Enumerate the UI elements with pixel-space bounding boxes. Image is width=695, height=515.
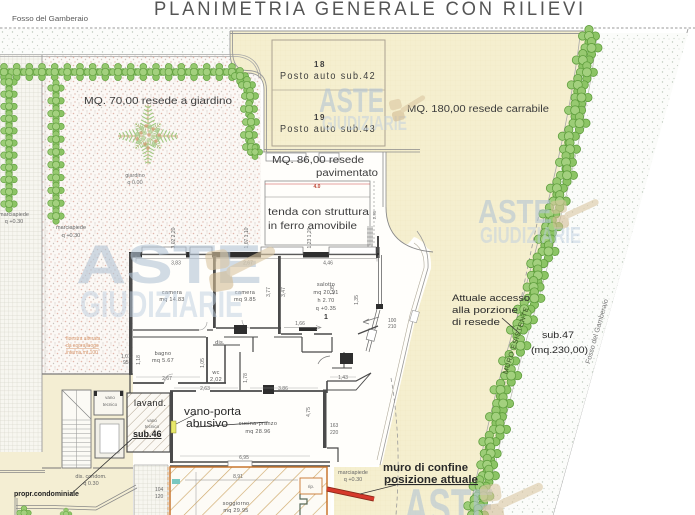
svg-text:mq 29.95: mq 29.95 <box>223 508 248 514</box>
svg-text:2,63: 2,63 <box>200 386 210 392</box>
svg-text:1,18: 1,18 <box>136 355 142 365</box>
svg-text:4,75: 4,75 <box>306 407 312 417</box>
svg-text:q +0.30: q +0.30 <box>5 219 24 225</box>
svg-text:4,46: 4,46 <box>323 261 333 267</box>
svg-text:q 0.00: q 0.00 <box>127 180 142 186</box>
svg-text:Posto auto sub.42: Posto auto sub.42 <box>280 71 376 82</box>
svg-text:dis.: dis. <box>215 340 225 346</box>
svg-text:120: 120 <box>155 494 164 500</box>
svg-text:mq 28.96: mq 28.96 <box>245 429 270 435</box>
svg-text:3,77: 3,77 <box>266 287 272 297</box>
svg-text:1,35: 1,35 <box>354 295 360 305</box>
svg-text:sub.47: sub.47 <box>542 330 574 341</box>
svg-text:3,47: 3,47 <box>281 287 287 297</box>
svg-text:marciapiede: marciapiede <box>56 225 86 231</box>
svg-text:dis. condom.: dis. condom. <box>75 474 107 480</box>
svg-text:1,05: 1,05 <box>200 358 206 368</box>
svg-text:pavimentato: pavimentato <box>316 168 378 179</box>
svg-text:Attuale accesso: Attuale accesso <box>452 293 530 304</box>
svg-text:1,78: 1,78 <box>243 373 249 383</box>
svg-text:sub.46: sub.46 <box>133 429 162 439</box>
svg-text:1,66: 1,66 <box>295 321 305 327</box>
svg-text:alla porzione: alla porzione <box>452 305 518 316</box>
svg-text:mq 5.67: mq 5.67 <box>152 358 174 364</box>
svg-text:1,43: 1,43 <box>338 375 348 381</box>
svg-text:marciapiede: marciapiede <box>338 470 368 476</box>
svg-text:marciapiede: marciapiede <box>0 212 29 218</box>
svg-text:posizione attuale: posizione attuale <box>384 474 478 486</box>
svg-text:18: 18 <box>314 60 326 69</box>
svg-text:abusivo: abusivo <box>186 418 228 430</box>
svg-text:finestra alterata: finestra alterata <box>66 336 101 342</box>
svg-text:soggiorno: soggiorno <box>223 501 250 507</box>
svg-text:(mq.230,00): (mq.230,00) <box>531 345 588 356</box>
svg-text:163: 163 <box>330 423 339 429</box>
svg-text:q 0.30: q 0.30 <box>83 481 98 487</box>
svg-text:MQ. 180,00 resede carrabile: MQ. 180,00 resede carrabile <box>407 104 549 115</box>
svg-text:bagno: bagno <box>155 351 172 357</box>
svg-text:vano-porta: vano-porta <box>184 406 242 418</box>
svg-text:MQ. 70,00 resede a giardin: MQ. 70,00 resede a giardino <box>84 96 233 107</box>
svg-text:8,91: 8,91 <box>233 474 243 480</box>
svg-text:1,23 1,20: 1,23 1,20 <box>307 227 313 248</box>
svg-text:wc: wc <box>211 370 219 376</box>
svg-text:1: 1 <box>324 314 328 321</box>
svg-text:muro di confine: muro di confine <box>383 462 468 474</box>
svg-text:210: 210 <box>388 324 397 330</box>
svg-text:propr.condominiale: propr.condominiale <box>14 491 79 498</box>
svg-text:95: 95 <box>123 360 129 366</box>
svg-text:giardino: giardino <box>125 173 145 179</box>
svg-text:tenda con struttura: tenda con struttura <box>268 207 370 218</box>
svg-text:rip.: rip. <box>308 484 314 489</box>
svg-text:Fosso del Gamberaio: Fosso del Gamberaio <box>12 16 88 23</box>
svg-text:interna mt 100: interna mt 100 <box>66 350 98 356</box>
svg-text:da sopralluogo: da sopralluogo <box>66 343 99 349</box>
svg-text:PLANIMETRIA GENERALE CON RI: PLANIMETRIA GENERALE CON RILIEVI <box>154 0 586 20</box>
svg-text:tecnico: tecnico <box>103 402 118 407</box>
svg-text:1,05: 1,05 <box>330 285 336 295</box>
svg-text:di resede: di resede <box>452 317 500 328</box>
svg-text:4.0: 4.0 <box>314 184 321 190</box>
svg-text:lavand.: lavand. <box>134 398 167 408</box>
svg-text:vano: vano <box>105 395 115 400</box>
svg-text:104: 104 <box>155 487 164 493</box>
svg-text:vano: vano <box>147 418 157 423</box>
svg-text:q +0.30: q +0.30 <box>344 477 363 483</box>
svg-text:3,86: 3,86 <box>278 386 288 392</box>
svg-text:h 2.70: h 2.70 <box>317 298 334 304</box>
svg-text:q +0.35: q +0.35 <box>316 306 337 312</box>
svg-text:220: 220 <box>330 430 339 436</box>
svg-text:MQ. 86,00 resede: MQ. 86,00 resede <box>272 155 365 166</box>
svg-text:2.95: 2.95 <box>372 210 377 219</box>
svg-text:2,02: 2,02 <box>210 377 222 383</box>
svg-text:cucina-pranzo: cucina-pranzo <box>239 421 277 427</box>
